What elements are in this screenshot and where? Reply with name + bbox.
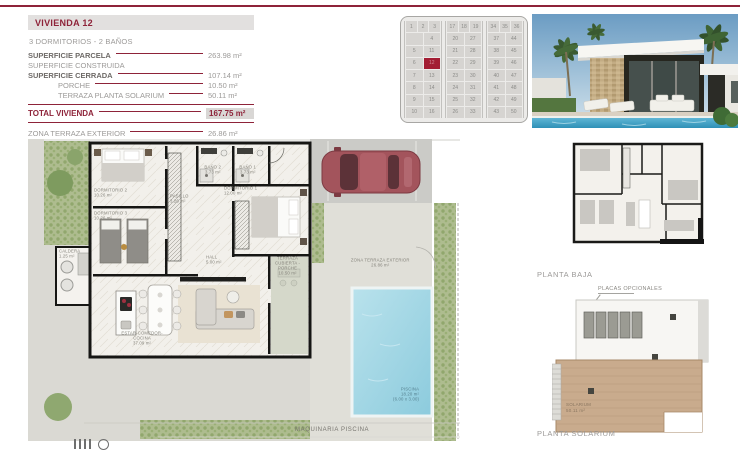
leader-line — [118, 73, 203, 74]
grid-row: 2532 — [447, 95, 481, 106]
grid-cell: 37 — [488, 33, 505, 44]
grid-cell: 35 — [500, 21, 511, 32]
spec-value: 107.14 m² — [208, 71, 254, 80]
room-label-porche: TERRAZA CUBIERTA -PORCHE 10.50 m² — [268, 256, 307, 276]
room-area: 5.00 m² — [206, 260, 222, 265]
spec-value: 263.98 m² — [208, 51, 254, 60]
villa-photo — [532, 14, 738, 128]
grid-row: 343536 — [488, 21, 522, 32]
grid-cell: 14 — [424, 82, 441, 93]
planta-solarium-drawing — [552, 296, 724, 438]
villa-title-text: VIVIENDA 12 — [35, 18, 93, 28]
maquinaria-piscina-label: MAQUINARIA PISCINA — [295, 427, 369, 434]
grid-row: 4148 — [488, 82, 522, 93]
spec-label: SUPERFICIE PARCELA — [28, 51, 111, 60]
room-label-estar: ESTAR-COMEDOR-COCINA 37.09 m² — [114, 331, 170, 346]
top-divider-rule — [0, 5, 740, 7]
site-grid: 1234511612713814915101617181920272128222… — [400, 16, 528, 123]
room-name: SOLARIUM — [566, 402, 591, 407]
planta-solarium-miniplan — [552, 296, 724, 438]
grid-row: 4350 — [488, 107, 522, 118]
leader-line — [169, 93, 203, 94]
spec-label: SUPERFICIE CONSTRUIDA — [28, 61, 125, 70]
room-area: 37.09 m² — [133, 341, 151, 346]
room-label-dormitorio2: DORMITORIO 2 10.26 m² — [94, 188, 127, 198]
grid-row: 915 — [406, 95, 440, 106]
grid-cell: 26 — [447, 107, 464, 118]
grid-cell: 5 — [406, 46, 423, 57]
grid-cell: 47 — [506, 70, 523, 81]
leader-line — [99, 111, 201, 112]
room-area: 1.25 m² — [59, 254, 75, 259]
grid-cell: 23 — [447, 70, 464, 81]
room-area: 3.26 m² — [170, 199, 186, 204]
room-area: 10.26 m² — [94, 193, 112, 198]
grid-row: 3744 — [488, 33, 522, 44]
grid-cell: 34 — [488, 21, 499, 32]
grid-cell: 17 — [447, 21, 458, 32]
main-floor-plan: DORMITORIO 2 10.26 m² DORMITORIO 3 10.26… — [28, 139, 460, 441]
total-vivienda-row: TOTAL VIVIENDA 167.75 m² — [28, 104, 254, 123]
grid-cell: 24 — [447, 82, 464, 93]
grid-cell: 13 — [424, 70, 441, 81]
logo-mark — [74, 439, 76, 449]
planta-baja-caption: PLANTA BAJA — [537, 270, 593, 279]
page-title: VIVIENDA 12 — [28, 15, 254, 30]
planta-solarium-caption: PLANTA SOLARIUM — [537, 429, 615, 438]
pool-label: PISCINA 18.20 m² (6.00 x 3.00) — [380, 387, 419, 402]
grid-row: 612 — [406, 58, 440, 69]
spec-row-cerrada: SUPERFICIE CERRADA 107.14 m² — [28, 70, 254, 80]
grid-cell-selected: 12 — [424, 58, 441, 69]
grid-cell — [406, 33, 423, 44]
grid-row: 2229 — [447, 58, 481, 69]
grid-row: 3946 — [488, 58, 522, 69]
grid-row: 814 — [406, 82, 440, 93]
grid-cell: 6 — [406, 58, 423, 69]
grid-row: 713 — [406, 70, 440, 81]
grid-row: 4249 — [488, 95, 522, 106]
spec-block: VIVIENDA 12 3 DORMITORIOS - 2 BAÑOS SUPE… — [28, 15, 254, 138]
grid-row: 2027 — [447, 33, 481, 44]
spec-row-terraza-solarium: TERRAZA PLANTA SOLARIUM 50.11 m² — [28, 90, 254, 100]
grid-row: 2330 — [447, 70, 481, 81]
zone-area: 26.86 m² — [371, 263, 389, 268]
grid-cell: 28 — [465, 46, 482, 57]
grid-cell: 30 — [465, 70, 482, 81]
grid-cell: 49 — [506, 95, 523, 106]
grid-cell: 33 — [465, 107, 482, 118]
room-label-dormitorio3: DORMITORIO 3 10.26 m² — [94, 211, 127, 221]
room-label-pasillo: PASILLO 3.26 m² — [170, 194, 189, 204]
spec-row-porche: PORCHE 10.50 m² — [28, 80, 254, 90]
total-label: TOTAL VIVIENDA — [28, 109, 94, 118]
grid-cell: 22 — [447, 58, 464, 69]
placas-opcionales-label: PLACAS OPCIONALES — [598, 286, 662, 292]
room-label-bano2: BAÑO 2 3.73 m² — [200, 165, 226, 175]
grid-cell: 18 — [459, 21, 470, 32]
grid-cell: 39 — [488, 58, 505, 69]
grid-cell: 10 — [406, 107, 423, 118]
room-label-dormitorio1: DORMITORIO 1 12.00 m² — [224, 186, 257, 196]
planta-baja-miniplan — [566, 140, 722, 258]
spec-value: 26.86 m² — [208, 129, 254, 138]
grid-cell: 46 — [506, 58, 523, 69]
total-value: 167.75 m² — [206, 108, 254, 119]
grid-row: 3845 — [488, 46, 522, 57]
grid-cell: 50 — [506, 107, 523, 118]
brochure-page: { "header": { "title": "VIVIENDA 12", "s… — [0, 0, 740, 445]
grid-cell: 31 — [465, 82, 482, 93]
planta-baja-drawing — [566, 140, 722, 258]
grid-row: 2128 — [447, 46, 481, 57]
villa-photo-drawing — [532, 14, 738, 128]
logo-mark — [89, 439, 91, 449]
grid-cell: 42 — [488, 95, 505, 106]
grid-row: 123 — [406, 21, 440, 32]
room-area: 10.26 m² — [94, 216, 112, 221]
room-label-hall: HALL 5.00 m² — [206, 255, 222, 265]
grid-cell: 48 — [506, 82, 523, 93]
grid-cell: 4 — [424, 33, 441, 44]
zona-terraza-label: ZONA TERRAZA EXTERIOR 26.86 m² — [342, 258, 419, 268]
grid-cell: 19 — [470, 21, 481, 32]
grid-cell: 11 — [424, 46, 441, 57]
grid-cell: 27 — [465, 33, 482, 44]
room-label-caldera: CALDERA 1.25 m² — [59, 249, 88, 259]
grid-row: 171819 — [447, 21, 481, 32]
room-label-bano1: BAÑO 1 3.73 m² — [235, 165, 261, 175]
spec-label: TERRAZA PLANTA SOLARIUM — [58, 91, 164, 100]
room-area: 3.73 m² — [205, 170, 221, 175]
grid-cell: 16 — [424, 107, 441, 118]
leader-line — [116, 53, 203, 54]
grid-cell: 43 — [488, 107, 505, 118]
logo-mark — [79, 439, 81, 449]
logo-mark — [84, 439, 86, 449]
spec-label: SUPERFICIE CERRADA — [28, 71, 113, 80]
villa-subtitle: 3 DORMITORIOS - 2 BAÑOS — [29, 37, 254, 46]
pool-dims: (6.00 x 3.00) — [393, 397, 419, 402]
room-area: 50.11 m² — [566, 408, 585, 413]
spec-value: 10.50 m² — [208, 81, 254, 90]
room-area: 3.73 m² — [240, 170, 256, 175]
grid-cell: 15 — [424, 95, 441, 106]
grid-cell: 1 — [406, 21, 417, 32]
grid-cell: 2 — [418, 21, 429, 32]
grid-cell: 7 — [406, 70, 423, 81]
grid-cell: 25 — [447, 95, 464, 106]
spec-row-parcela: SUPERFICIE PARCELA 263.98 m² — [28, 50, 254, 60]
leader-line — [130, 131, 203, 132]
grid-cell: 9 — [406, 95, 423, 106]
grid-cell: 40 — [488, 70, 505, 81]
grid-cell: 36 — [511, 21, 522, 32]
grid-row: 511 — [406, 46, 440, 57]
solarium-room-label: SOLARIUM 50.11 m² — [566, 402, 591, 414]
grid-cell: 44 — [506, 33, 523, 44]
room-name: ESTAR-COMEDOR-COCINA — [121, 331, 162, 341]
grid-cell: 20 — [447, 33, 464, 44]
room-name: TERRAZA CUBIERTA -PORCHE — [275, 256, 300, 271]
leader-line — [95, 83, 203, 84]
grid-cell: 21 — [447, 46, 464, 57]
spec-row-zona-exterior: ZONA TERRAZA EXTERIOR 26.86 m² — [28, 128, 254, 138]
grid-cell: 38 — [488, 46, 505, 57]
grid-cell: 32 — [465, 95, 482, 106]
grid-block: 1718192027212822292330243125322633 — [445, 21, 483, 118]
grid-row: 2633 — [447, 107, 481, 118]
grid-block: 12345116127138149151016 — [404, 21, 442, 118]
grid-cell: 41 — [488, 82, 505, 93]
placas-underline — [598, 293, 634, 294]
grid-cell: 8 — [406, 82, 423, 93]
spec-label: ZONA TERRAZA EXTERIOR — [28, 129, 125, 138]
room-area: 10.50 m² — [278, 271, 296, 276]
grid-block: 3435363744384539464047414842494350 — [486, 21, 524, 118]
grid-row: 2431 — [447, 82, 481, 93]
grid-cell: 45 — [506, 46, 523, 57]
grid-row: 4 — [406, 33, 440, 44]
grid-row: 1016 — [406, 107, 440, 118]
spec-row-construida: SUPERFICIE CONSTRUIDA — [28, 60, 254, 70]
room-area: 12.00 m² — [224, 191, 242, 196]
grid-row: 4047 — [488, 70, 522, 81]
spec-label: PORCHE — [58, 81, 90, 90]
spec-value: 50.11 m² — [208, 91, 254, 100]
grid-cell: 29 — [465, 58, 482, 69]
grid-cell: 3 — [429, 21, 440, 32]
